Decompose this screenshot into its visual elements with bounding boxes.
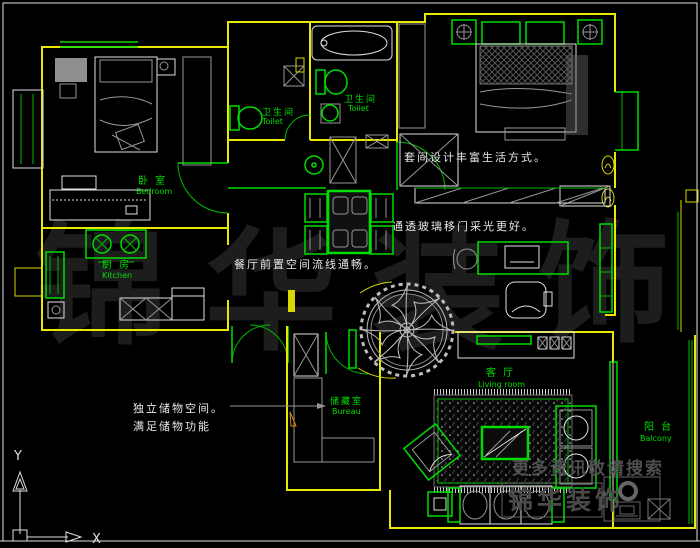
floorplan-drawing: 锦 华 装 饰 Y X bbox=[0, 0, 700, 548]
balcony-label-en: Balcony bbox=[640, 434, 672, 443]
bathrooms: 卫生间 Toilet 卫生间 Toilet bbox=[228, 22, 397, 140]
walkin-closet bbox=[399, 24, 425, 128]
bedroom-label-zh: 卧 室 bbox=[138, 174, 167, 187]
balcony-door bbox=[610, 362, 617, 500]
watermark-char-1: 锦 bbox=[35, 210, 167, 364]
coffee-table bbox=[482, 427, 528, 459]
annotation-dining: 餐厅前置空间流线通畅。 bbox=[234, 257, 377, 271]
axis-y-label: Y bbox=[13, 449, 22, 464]
door-frame bbox=[288, 290, 295, 312]
watermark-brand-small: 锦华装饰 bbox=[508, 486, 624, 515]
storage-annotation: 独立储物空间。 满足储物功能 bbox=[133, 401, 326, 433]
bookshelf bbox=[322, 438, 374, 462]
bedroom-label-en: Bedroom bbox=[136, 187, 172, 196]
bay-window bbox=[13, 90, 43, 168]
toilet-fixture-left bbox=[230, 106, 262, 130]
kitchen-label-en: Kitchen bbox=[102, 271, 132, 280]
annotation-storage-1: 独立储物空间。 bbox=[133, 401, 224, 415]
bureau-label-zh: 储藏室 bbox=[330, 395, 363, 407]
axis-x-label: X bbox=[92, 532, 101, 547]
watermark-char-2: 华 bbox=[205, 216, 337, 370]
bureau-label-en: Bureau bbox=[332, 407, 361, 416]
column-symbol bbox=[602, 189, 614, 207]
chair bbox=[60, 84, 76, 98]
floor-drain bbox=[284, 66, 304, 86]
watermark-tagline: 更多资讯敬请搜索 bbox=[512, 458, 664, 479]
dining-table bbox=[328, 191, 370, 253]
living-label-en: Living room bbox=[478, 380, 525, 389]
column bbox=[686, 190, 698, 202]
fridge bbox=[172, 288, 204, 320]
balcony-drain-box bbox=[648, 499, 670, 519]
wardrobe bbox=[183, 57, 211, 165]
double-bed bbox=[452, 20, 602, 140]
door-stop bbox=[290, 412, 296, 426]
washbasin bbox=[322, 105, 338, 121]
toilet-fixture-right bbox=[316, 70, 347, 94]
kitchen-label-zh: 厨 房 bbox=[102, 258, 131, 271]
annotation-storage-2: 满足储物功能 bbox=[133, 419, 211, 433]
column-symbol bbox=[602, 156, 614, 174]
hall-basin bbox=[305, 156, 323, 174]
balcony-label-zh: 阳 台 bbox=[644, 420, 673, 433]
bed-bench bbox=[505, 128, 565, 140]
bathtub bbox=[312, 26, 392, 60]
room-bedroom: 卧 室 Bedroom bbox=[13, 42, 228, 228]
shelving bbox=[294, 378, 322, 462]
master-window bbox=[615, 92, 638, 150]
ucs-axis-icon: Y X bbox=[13, 449, 101, 547]
toilet-right-label-en: Toilet bbox=[347, 104, 369, 113]
living-label-zh: 客 厅 bbox=[486, 366, 515, 379]
annotation-glass-door: 通透玻璃移门采光更好。 bbox=[392, 219, 535, 233]
sliding-glass-door bbox=[415, 188, 605, 203]
watermark-badge: 更多资讯敬请搜索 锦华装饰 bbox=[502, 458, 664, 521]
cad-floorplan-canvas[interactable]: 锦 华 装 饰 Y X bbox=[0, 0, 700, 548]
single-bed bbox=[95, 57, 157, 152]
toilet-left-label-en: Toilet bbox=[261, 117, 283, 126]
desk bbox=[55, 58, 87, 82]
